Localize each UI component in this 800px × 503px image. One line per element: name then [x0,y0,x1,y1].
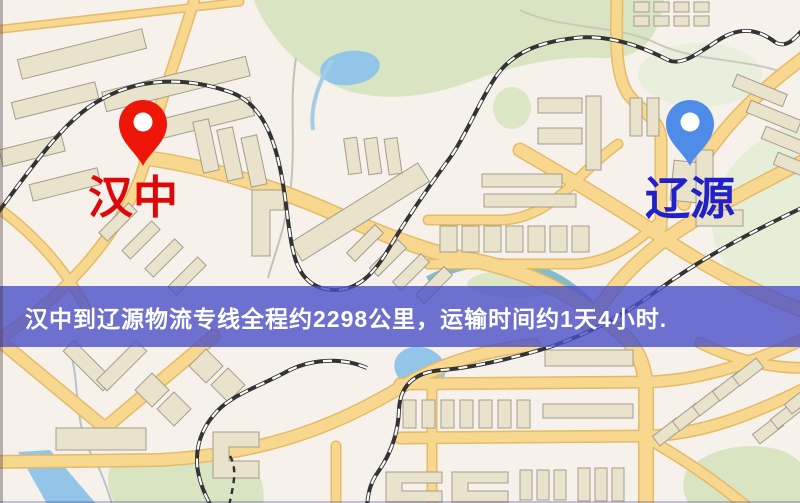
map: 汉中 辽源 [0,0,800,503]
map-screenshot: 汉中 辽源 汉中到辽源物流专线全程约2298公里，运输时间约1天4小时. [0,0,800,503]
route-info-text: 汉中到辽源物流专线全程约2298公里，运输时间约1天4小时. [25,300,667,334]
origin-pin-hole [134,113,153,132]
destination-pin-hole [681,113,700,132]
left-edge-shadow [0,0,3,503]
origin-label: 汉中 [88,172,178,223]
route-info-banner: 汉中到辽源物流专线全程约2298公里，运输时间约1天4小时. [0,286,800,347]
destination-label: 辽源 [645,173,735,224]
